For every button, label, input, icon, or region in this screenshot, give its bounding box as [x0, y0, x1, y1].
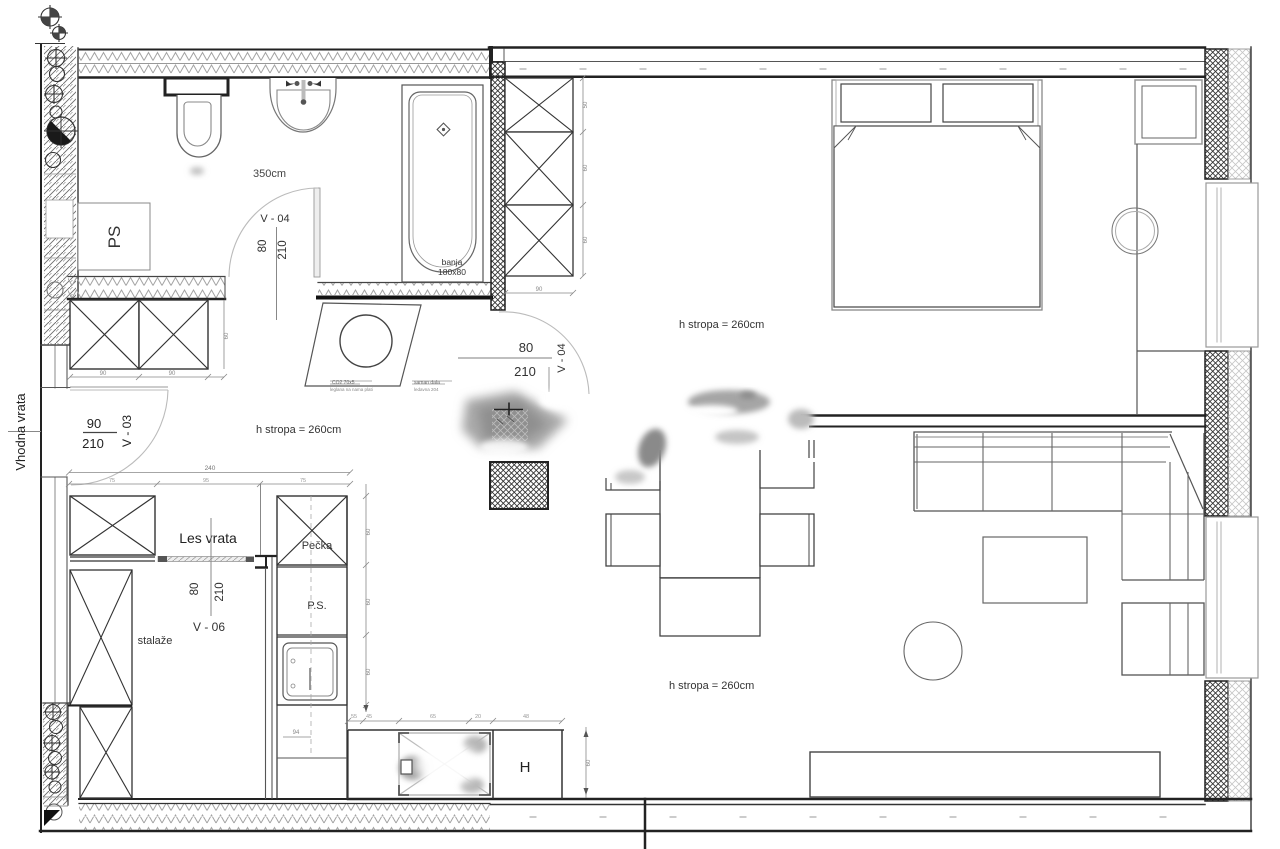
svg-text:80: 80 — [257, 240, 269, 253]
svg-text:V - 04: V - 04 — [556, 343, 568, 372]
svg-text:60: 60 — [586, 759, 592, 766]
svg-text:95: 95 — [203, 478, 209, 484]
svg-text:65: 65 — [430, 714, 436, 720]
svg-text:350cm: 350cm — [253, 168, 286, 180]
svg-text:210: 210 — [514, 364, 536, 379]
svg-text:90: 90 — [100, 371, 107, 377]
svg-text:60: 60 — [366, 528, 372, 535]
svg-text:60: 60 — [583, 236, 589, 243]
svg-text:210: 210 — [214, 582, 226, 601]
svg-text:90: 90 — [536, 287, 543, 293]
svg-text:V - 06: V - 06 — [193, 620, 225, 634]
svg-text:h stropa = 260cm: h stropa = 260cm — [679, 319, 764, 331]
svg-text:90: 90 — [87, 416, 101, 431]
svg-text:50: 50 — [583, 101, 589, 108]
svg-text:Pečka: Pečka — [302, 540, 333, 552]
svg-text:banja: banja — [442, 257, 463, 267]
svg-text:leglana na nama plati: leglana na nama plati — [330, 387, 373, 392]
svg-text:94: 94 — [293, 730, 300, 736]
svg-text:V - 04: V - 04 — [260, 213, 289, 225]
svg-text:75: 75 — [300, 478, 306, 484]
svg-text:48: 48 — [523, 714, 529, 720]
svg-text:210: 210 — [277, 240, 289, 259]
svg-text:H: H — [520, 759, 531, 776]
svg-text:80: 80 — [189, 583, 201, 596]
svg-text:P.S.: P.S. — [307, 600, 326, 612]
svg-text:ledavna 204: ledavna 204 — [414, 387, 439, 392]
svg-text:90: 90 — [169, 371, 176, 377]
svg-text:saman dala: saman dala — [414, 380, 440, 386]
svg-text:45: 45 — [366, 714, 372, 720]
svg-text:240: 240 — [205, 465, 216, 472]
svg-text:75: 75 — [109, 478, 115, 484]
svg-text:60: 60 — [583, 164, 589, 171]
svg-text:180x80: 180x80 — [438, 267, 466, 277]
svg-text:h stropa = 260cm: h stropa = 260cm — [669, 680, 754, 692]
svg-text:60: 60 — [366, 598, 372, 605]
svg-text:stalaže: stalaže — [138, 635, 173, 647]
svg-text:60: 60 — [224, 332, 230, 339]
svg-text:h stropa = 260cm: h stropa = 260cm — [256, 424, 341, 436]
svg-text:Vhodna vrata: Vhodna vrata — [13, 393, 28, 471]
svg-text:210: 210 — [82, 436, 104, 451]
svg-text:CO2 70x5: CO2 70x5 — [332, 380, 355, 386]
svg-text:PS: PS — [105, 226, 124, 249]
svg-text:60: 60 — [366, 668, 372, 675]
svg-text:80: 80 — [519, 340, 533, 355]
svg-text:V - 03: V - 03 — [120, 415, 134, 447]
svg-text:55: 55 — [351, 714, 357, 720]
svg-text:20: 20 — [475, 714, 481, 720]
svg-text:Les vrata: Les vrata — [179, 530, 237, 546]
